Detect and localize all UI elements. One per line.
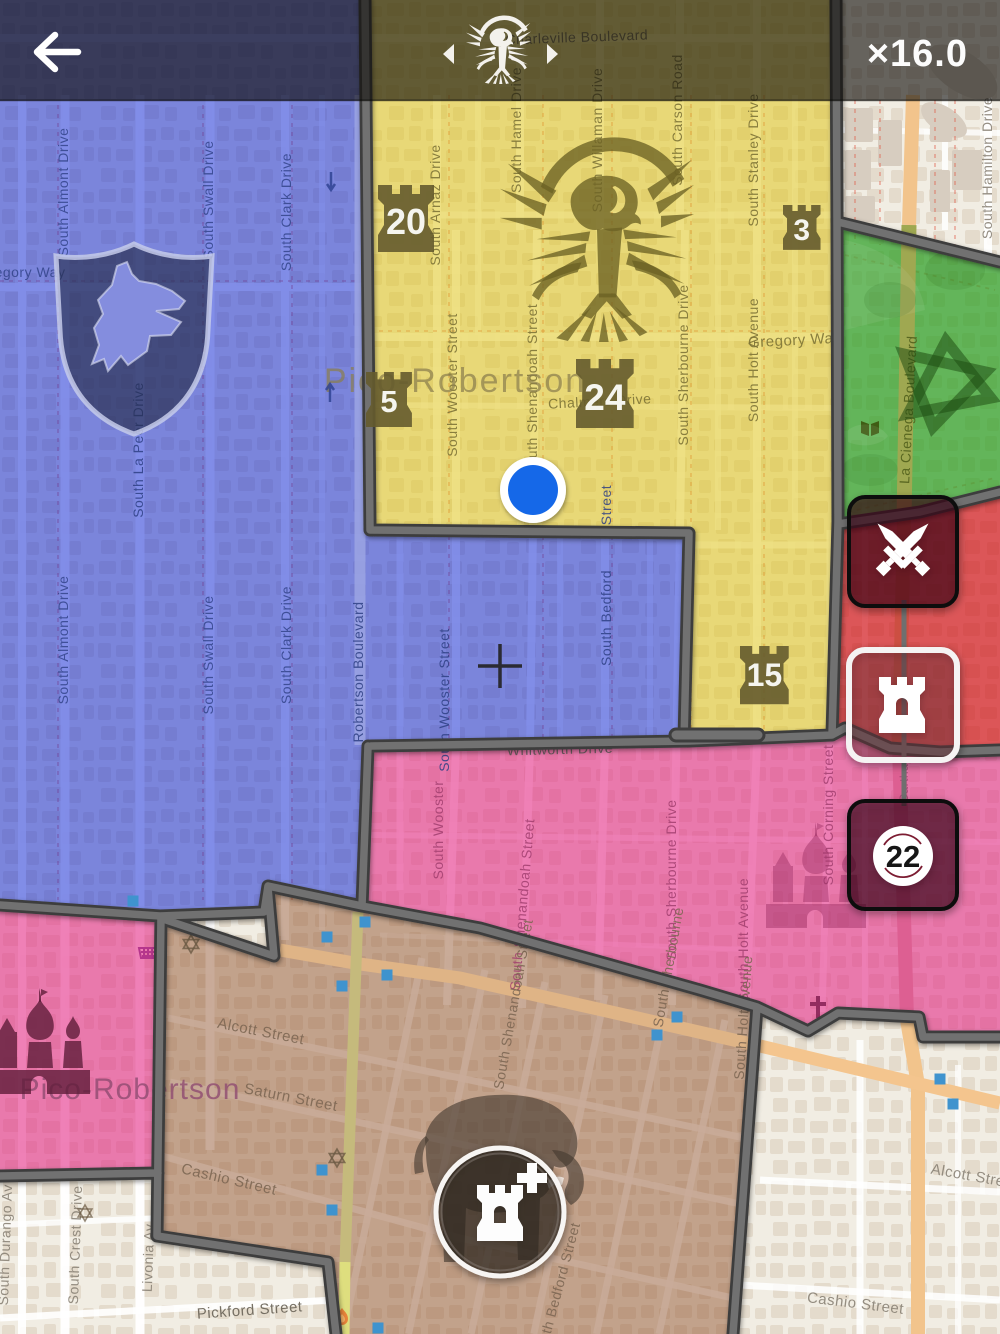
- svg-text:South Hamilton Drive: South Hamilton Drive: [979, 97, 995, 239]
- svg-text:South Swall Drive: South Swall Drive: [200, 596, 216, 715]
- svg-text:South Clark Drive: South Clark Drive: [278, 586, 294, 704]
- svg-text:South Sherbourne Drive: South Sherbourne Drive: [675, 284, 691, 445]
- svg-text:3: 3: [793, 214, 810, 247]
- svg-text:South Holt Avenue: South Holt Avenue: [745, 298, 761, 422]
- svg-text:Robertson Boulevard: Robertson Boulevard: [350, 601, 366, 742]
- svg-text:South Almont Drive: South Almont Drive: [55, 576, 71, 705]
- svg-text:South Stanley Drive: South Stanley Drive: [745, 93, 761, 226]
- svg-text:South Swall Drive: South Swall Drive: [200, 141, 216, 260]
- svg-text:South Bedford: South Bedford: [598, 570, 614, 666]
- svg-text:5: 5: [380, 384, 397, 419]
- svg-text:24: 24: [584, 377, 626, 418]
- svg-text:×16.0: ×16.0: [867, 33, 968, 75]
- svg-text:South Wooster: South Wooster: [430, 781, 446, 880]
- svg-text:15: 15: [747, 657, 783, 693]
- svg-text:20: 20: [386, 201, 426, 242]
- svg-text:22: 22: [886, 839, 920, 874]
- svg-text:Street: Street: [598, 485, 614, 525]
- svg-text:South Clark Drive: South Clark Drive: [278, 153, 294, 271]
- svg-text:South Almont Drive: South Almont Drive: [55, 128, 71, 257]
